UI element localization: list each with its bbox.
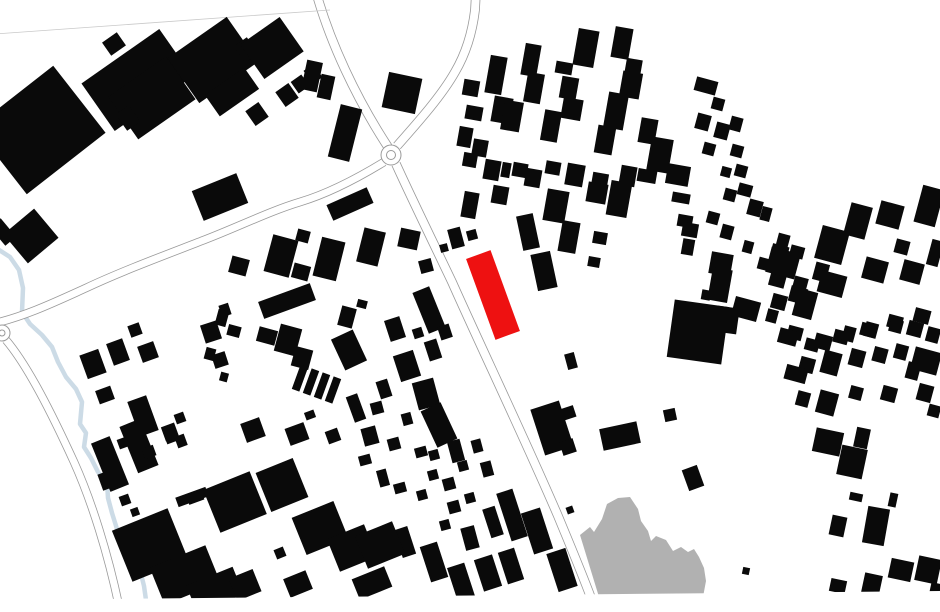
building-footprint xyxy=(457,460,469,472)
building-footprint xyxy=(819,350,842,377)
building-footprint xyxy=(702,142,717,157)
building-footprint xyxy=(714,306,739,335)
building-footprint xyxy=(610,26,633,60)
building-footprint xyxy=(524,168,543,189)
building-footprint xyxy=(862,506,890,546)
building-footprint xyxy=(203,471,267,532)
building-footprint xyxy=(106,338,130,365)
building-footprint xyxy=(460,525,479,551)
building-footprint xyxy=(358,454,372,467)
building-footprint xyxy=(470,438,483,453)
roundabout-island xyxy=(387,151,396,160)
building-footprint xyxy=(442,477,457,492)
northeast-road-casing xyxy=(397,0,476,146)
building-footprint xyxy=(555,61,574,76)
building-footprint xyxy=(474,554,502,591)
building-footprint xyxy=(843,202,873,240)
building-footprint xyxy=(424,338,443,361)
building-footprint xyxy=(219,372,229,383)
building-footprint xyxy=(337,305,357,328)
building-footprint xyxy=(523,72,545,104)
building-footprint xyxy=(829,578,847,594)
building-footprint xyxy=(393,350,421,382)
building-footprint xyxy=(564,352,578,370)
building-footprint xyxy=(720,166,732,178)
building-footprint xyxy=(559,76,580,101)
building-footprint xyxy=(95,386,115,405)
building-footprint xyxy=(871,346,888,364)
building-footprint xyxy=(352,566,393,600)
building-footprint xyxy=(462,79,481,98)
roundabout-island xyxy=(0,330,5,336)
building-footprint xyxy=(557,220,580,254)
building-footprint xyxy=(447,500,462,515)
building-footprint xyxy=(460,191,479,219)
building-footprint xyxy=(663,408,677,422)
building-footprint xyxy=(462,152,478,168)
building-footprint xyxy=(376,379,393,400)
building-footprint xyxy=(592,231,608,245)
building-footprint xyxy=(79,349,106,379)
building-footprint xyxy=(817,270,848,298)
building-footprint xyxy=(706,211,721,226)
building-footprint xyxy=(480,460,495,477)
building-footprint xyxy=(916,383,935,403)
building-footprint xyxy=(719,224,734,241)
building-footprint xyxy=(775,233,790,250)
river-road xyxy=(6,340,119,606)
building-footprint xyxy=(192,173,248,221)
map-canvas xyxy=(0,0,940,612)
building-footprint xyxy=(542,188,569,223)
building-footprint xyxy=(875,200,904,229)
building-footprint xyxy=(240,17,303,79)
building-footprint xyxy=(484,55,507,95)
building-footprint xyxy=(566,506,575,515)
building-footprint xyxy=(737,182,754,197)
building-footprint xyxy=(137,341,159,363)
building-footprint xyxy=(464,105,483,122)
building-footprint xyxy=(466,229,478,241)
building-footprint xyxy=(420,542,449,583)
building-footprint xyxy=(226,324,241,338)
building-footprint xyxy=(313,237,346,282)
building-footprint xyxy=(304,410,316,421)
building-footprint xyxy=(393,482,407,495)
figure-ground-map xyxy=(0,0,940,612)
building-footprint xyxy=(491,185,510,206)
building-footprint xyxy=(256,326,278,345)
building-footprint xyxy=(397,228,421,251)
building-footprint xyxy=(256,458,309,512)
building-footprint xyxy=(258,283,316,319)
building-footprint xyxy=(587,256,601,268)
building-footprint xyxy=(530,251,557,291)
building-footprint xyxy=(606,180,633,218)
building-footprint xyxy=(382,72,423,114)
building-footprint xyxy=(3,209,58,264)
building-footprint xyxy=(742,567,750,575)
building-footprint xyxy=(841,325,856,343)
building-footprint xyxy=(671,192,690,205)
building-footprint xyxy=(848,348,867,368)
building-footprint xyxy=(291,263,311,282)
building-footprint xyxy=(447,439,465,464)
building-footprint xyxy=(215,309,230,327)
building-footprint xyxy=(174,412,187,425)
building-footprint xyxy=(848,385,864,401)
building-footprint xyxy=(681,222,699,239)
building-footprint xyxy=(356,227,386,266)
building-footprint xyxy=(427,469,439,481)
building-footprint xyxy=(285,422,310,446)
northeast-road xyxy=(397,0,476,146)
building-footprint xyxy=(500,162,511,178)
building-footprint xyxy=(376,468,390,487)
building-footprint xyxy=(730,144,745,159)
building-footprint xyxy=(540,109,562,142)
building-footprint xyxy=(836,445,868,480)
building-footprint xyxy=(416,489,428,501)
building-footprint xyxy=(119,494,132,507)
building-footprint xyxy=(893,343,909,361)
building-footprint xyxy=(240,417,266,443)
building-footprint xyxy=(283,570,313,598)
building-footprint xyxy=(599,421,641,450)
building-footprint xyxy=(412,327,425,340)
building-footprint xyxy=(925,326,940,344)
building-footprint xyxy=(899,259,925,285)
building-footprint xyxy=(888,558,915,582)
building-footprint xyxy=(880,385,898,403)
building-footprint xyxy=(893,238,910,255)
building-footprint xyxy=(356,299,368,309)
building-footprint xyxy=(905,361,922,381)
building-footprint xyxy=(694,112,712,131)
building-footprint xyxy=(603,92,629,131)
building-footprint xyxy=(464,492,476,504)
building-footprint xyxy=(331,330,367,371)
building-footprint xyxy=(795,390,811,408)
building-footprint xyxy=(130,507,140,517)
building-footprint xyxy=(888,492,899,507)
building-footprint xyxy=(447,227,465,250)
building-footprint xyxy=(665,163,691,187)
building-footprint xyxy=(913,185,940,227)
building-footprint xyxy=(815,389,839,416)
building-footprint xyxy=(742,240,755,254)
building-footprint xyxy=(560,97,583,121)
building-footprint xyxy=(572,28,599,68)
building-footprint xyxy=(770,293,788,311)
building-footprint xyxy=(694,76,719,95)
building-footprint xyxy=(585,181,608,204)
building-footprint xyxy=(325,428,342,445)
building-footprint xyxy=(401,412,414,426)
building-footprint xyxy=(564,163,586,188)
building-footprint xyxy=(927,404,940,419)
building-footprint xyxy=(387,437,402,452)
building-footprint xyxy=(482,506,504,539)
building-footprint xyxy=(520,43,541,77)
building-footprint xyxy=(713,121,731,140)
building-footprint xyxy=(711,97,726,112)
building-footprint xyxy=(765,308,779,323)
building-footprint xyxy=(102,32,126,55)
building-footprint xyxy=(418,258,434,274)
building-footprint xyxy=(734,164,749,179)
building-footprint xyxy=(544,160,561,175)
river-road-casing xyxy=(6,340,119,606)
building-footprint xyxy=(849,492,863,503)
building-footprint xyxy=(498,548,524,585)
building-footprint xyxy=(853,427,871,449)
building-footprint xyxy=(428,449,440,461)
building-footprint xyxy=(439,519,451,531)
building-footprint xyxy=(914,555,940,584)
building-footprint xyxy=(723,188,738,203)
building-footprint xyxy=(482,159,501,181)
building-footprint xyxy=(682,465,705,491)
building-footprint xyxy=(328,104,362,162)
building-footprint xyxy=(861,256,889,283)
building-footprint xyxy=(245,102,268,126)
building-footprint xyxy=(360,425,379,446)
building-footprint xyxy=(127,322,142,337)
building-footprint xyxy=(456,126,473,148)
building-footprint xyxy=(728,116,743,133)
open-space-area xyxy=(580,497,706,597)
building-footprint xyxy=(594,125,617,156)
building-footprint xyxy=(829,515,848,538)
building-footprint xyxy=(926,239,940,267)
building-footprint xyxy=(414,446,428,459)
building-footprint xyxy=(228,255,250,276)
building-footprint xyxy=(346,393,367,422)
building-footprint xyxy=(812,427,844,456)
building-footprint xyxy=(273,546,286,559)
building-footprint xyxy=(384,316,406,342)
building-footprint xyxy=(370,401,385,416)
building-footprint xyxy=(681,238,696,256)
building-footprint xyxy=(516,213,540,251)
